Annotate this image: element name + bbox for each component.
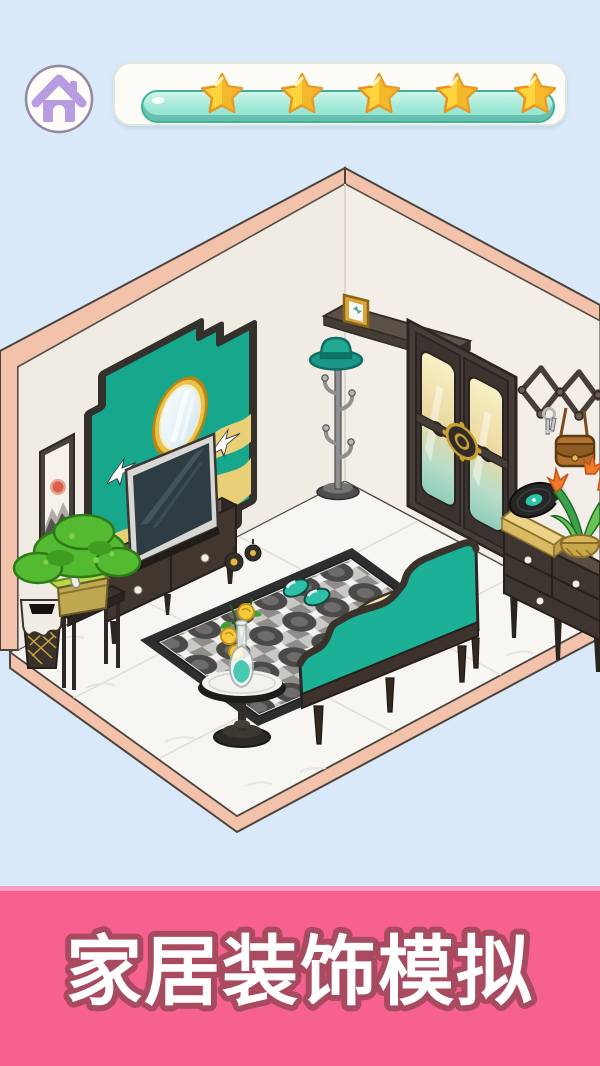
home-icon (23, 63, 95, 135)
home-button[interactable] (23, 63, 95, 135)
banner-title: 家居装饰模拟 (66, 927, 534, 1016)
level-progress-bar (113, 62, 567, 126)
waste-bin[interactable] (21, 600, 63, 668)
star-icon (278, 71, 326, 119)
title-banner: 家居装饰模拟 (0, 886, 600, 1066)
header (0, 0, 600, 150)
star-icon (511, 71, 559, 119)
star-icon (198, 71, 246, 119)
app: 家居装饰模拟 (0, 0, 600, 1066)
photo-frame[interactable] (344, 295, 368, 327)
progress-glint (152, 97, 164, 104)
star-icon (355, 71, 403, 119)
star-icon (433, 71, 481, 119)
